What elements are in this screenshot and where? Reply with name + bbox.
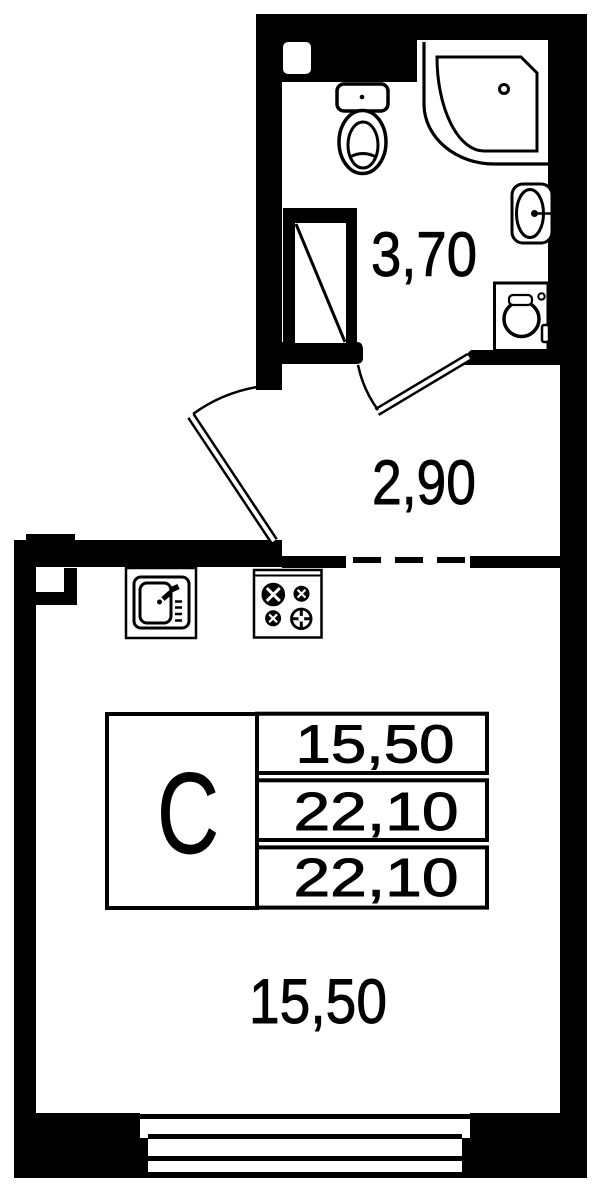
svg-text:15,50: 15,50 <box>249 967 387 1037</box>
svg-text:3,70: 3,70 <box>371 220 477 290</box>
svg-text:22,10: 22,10 <box>294 782 459 842</box>
svg-text:22,10: 22,10 <box>294 848 459 908</box>
svg-text:15,50: 15,50 <box>296 715 455 775</box>
svg-text:2,90: 2,90 <box>372 448 476 518</box>
svg-text:С: С <box>157 750 219 878</box>
